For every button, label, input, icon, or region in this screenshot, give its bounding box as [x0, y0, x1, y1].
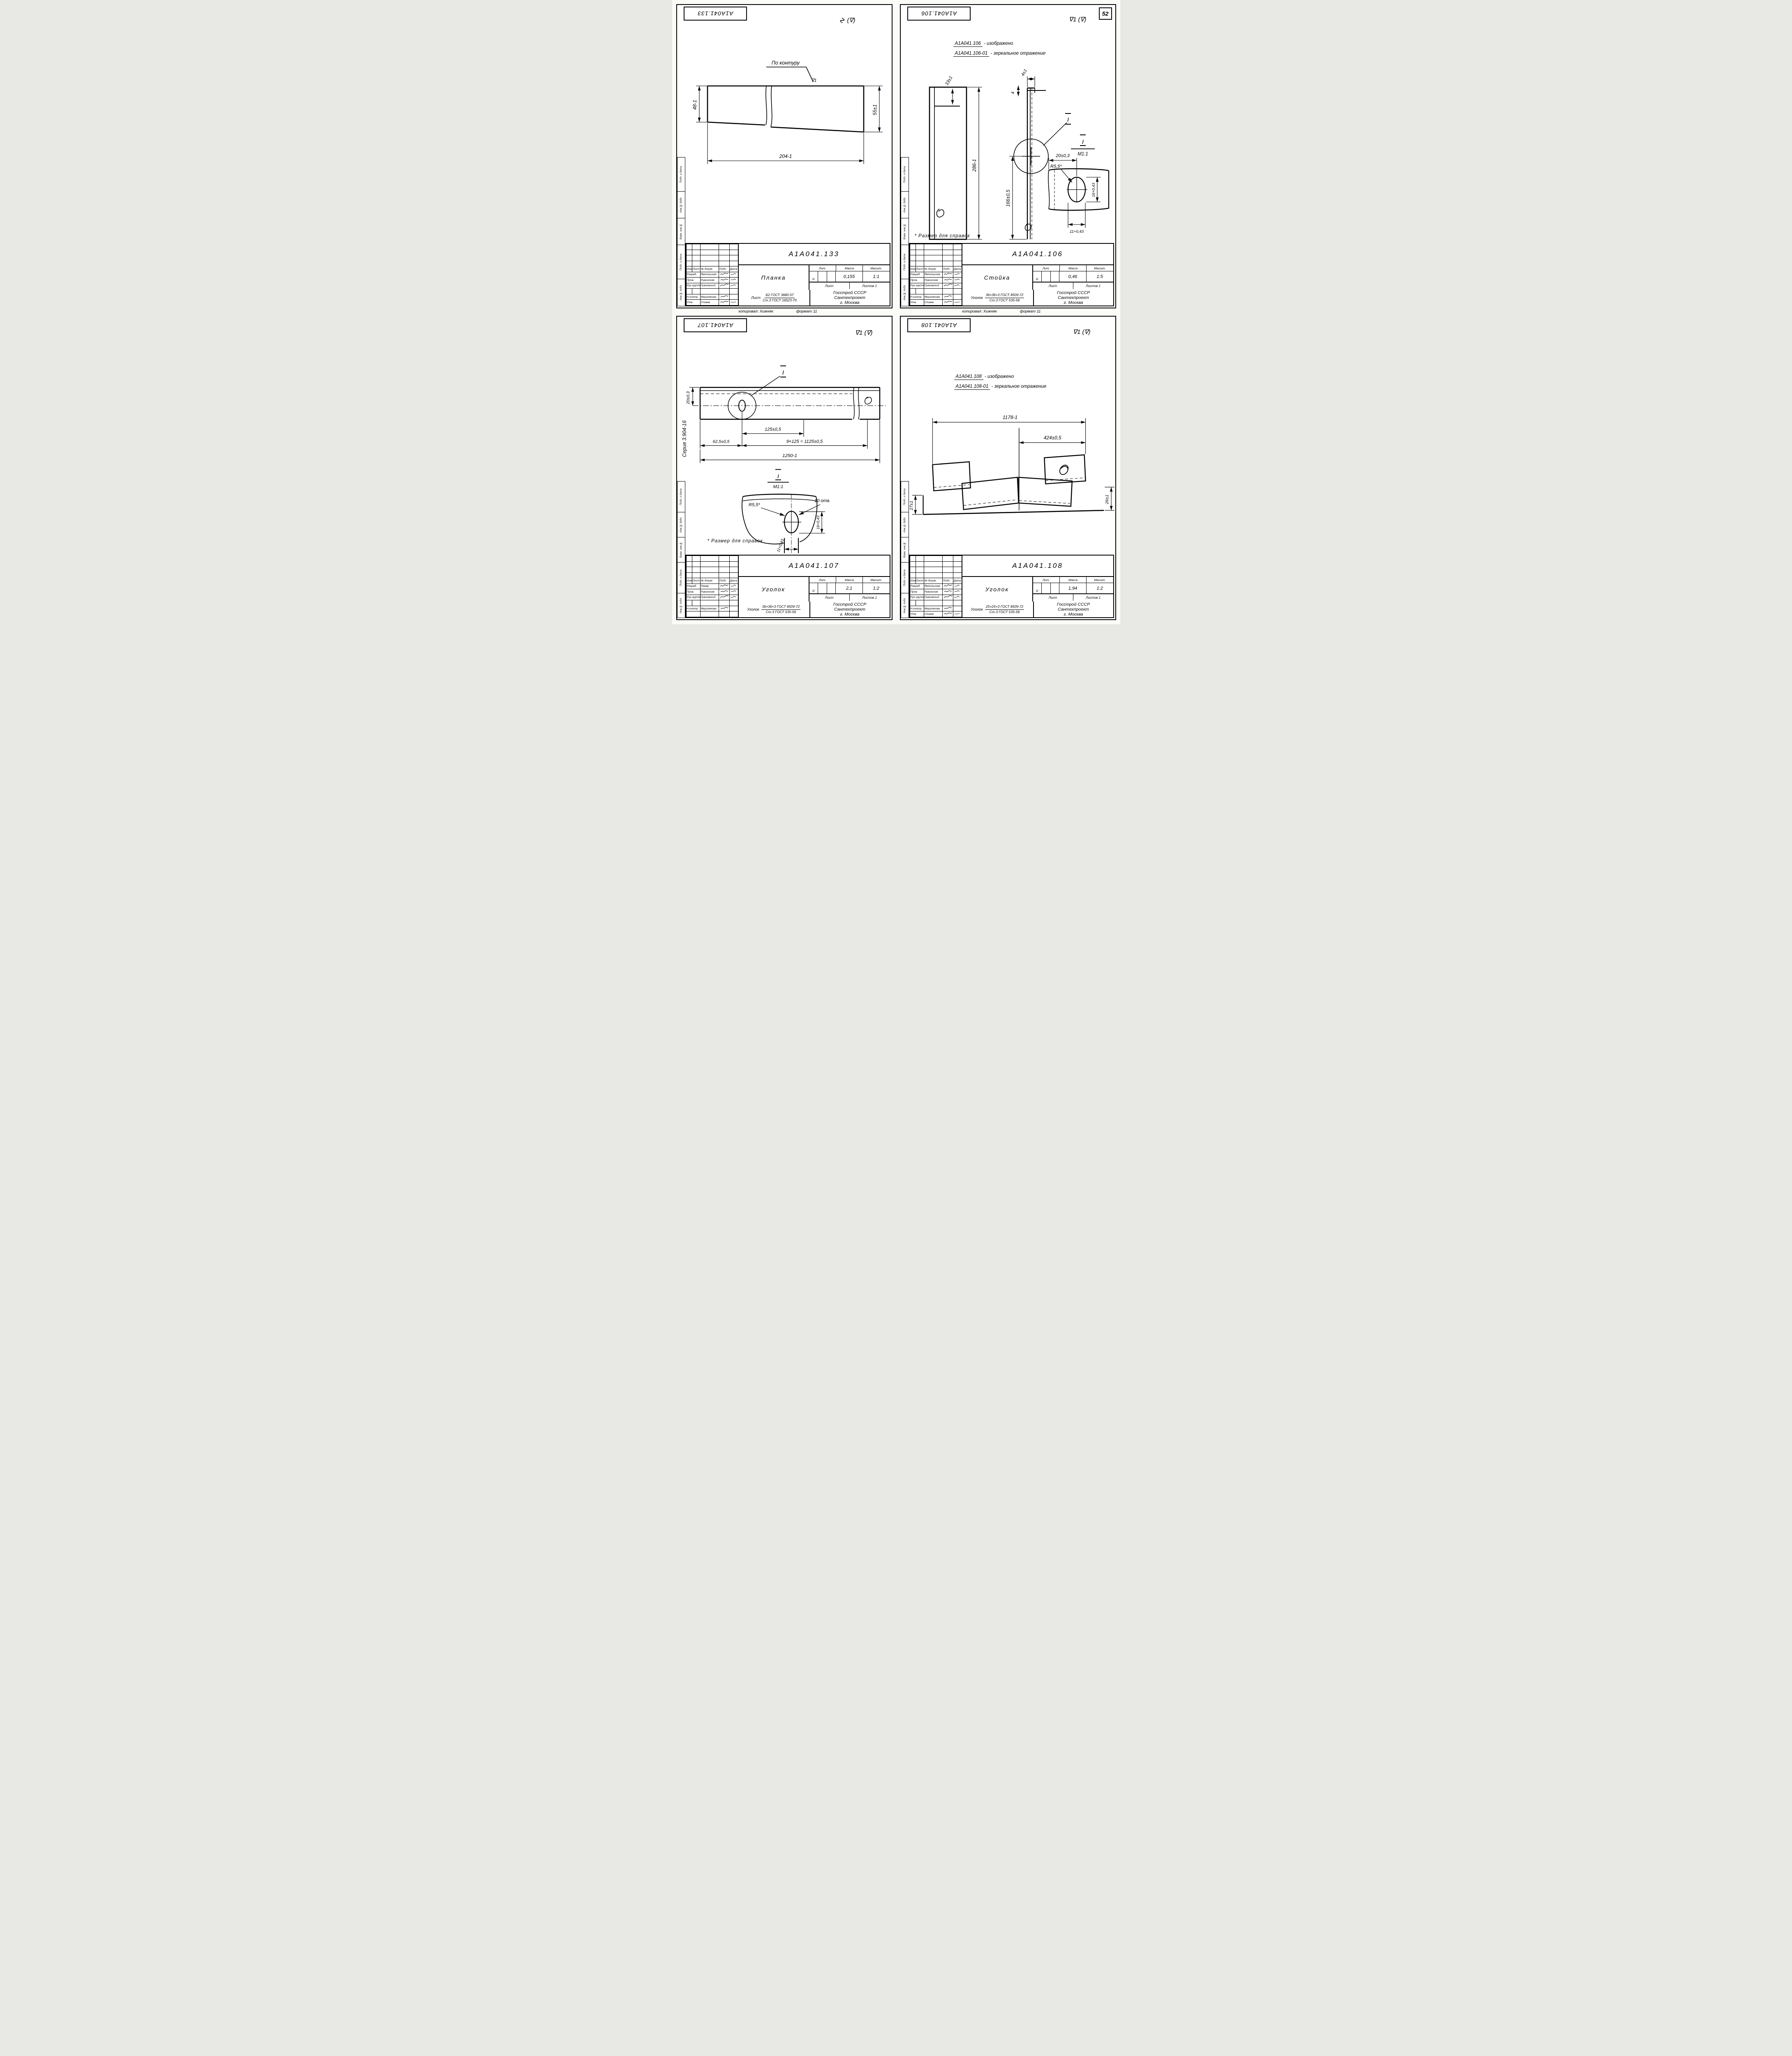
role-razrab: Разраб. — [910, 583, 924, 589]
sheet-a1a041-107: А1А041.107 ∇1 (∇) Серия 3.904-16 — [676, 316, 893, 620]
role-razrab: Разраб. — [686, 583, 700, 589]
role-razrab: Разраб. — [686, 272, 700, 278]
org-line: г. Москва — [840, 612, 860, 617]
strip-label: Инв.№ дубл. — [903, 197, 906, 213]
part-name: Уголок — [962, 577, 1033, 602]
role-utv: Утв. — [910, 611, 924, 617]
dim-424: 424±0,5 — [1043, 435, 1061, 440]
material-prefix: Лист — [751, 296, 761, 300]
signature — [719, 584, 729, 588]
col-ndok: № докум. — [700, 578, 719, 584]
org-line: Сантехпроект — [834, 295, 865, 300]
copy-line: копировал: Хижняк формат 11 — [962, 309, 1041, 314]
detail-label: I — [1082, 139, 1083, 146]
dim-16: 16+0,43 — [816, 515, 820, 529]
material-bottom: Ст.3 ГОСТ 535-58 — [990, 298, 1020, 303]
signature — [943, 607, 953, 610]
margin-strip: Подп. и дата Инв.№ дубл. Взам. инв.№ Под… — [677, 157, 685, 306]
planka-outline — [708, 86, 864, 132]
material-cell: Лист Б2 ГОСТ 3680-57Ст.3 ГОСТ 16523-70 — [739, 290, 809, 306]
material-bottom: Ст.3 ГОСТ 535-58 — [990, 610, 1020, 614]
dim-26: 26±1 — [1105, 495, 1110, 505]
material-bottom: Ст.3 ГОСТ 535-56 — [766, 610, 796, 614]
variant-doc: А1А041.108-01 — [954, 384, 990, 390]
mass-value: 0,46 — [1059, 271, 1087, 282]
strip-label: Инв.№ подл. — [903, 597, 906, 614]
signature — [943, 595, 953, 599]
doc-stamp: А1А041.133 — [684, 7, 747, 21]
scale-value: 1:2 — [1087, 583, 1113, 593]
doc-stamp: А1А041.107 — [684, 318, 747, 332]
mass-value: 1,94 — [1059, 583, 1087, 593]
ugolok-corner-view: 1178-1 424±0,5 27±1 26±1 — [901, 403, 1117, 526]
listov-value: 1 — [1098, 596, 1100, 600]
date-scribble — [954, 584, 960, 588]
name-nkontr: Мерзлякова — [924, 606, 942, 611]
break-squiggle — [1059, 465, 1068, 475]
material-top: Б2 ГОСТ 3680-57 — [765, 293, 794, 298]
radius-label: R5,5* — [1050, 164, 1062, 169]
role-prov: Пров. — [910, 278, 924, 283]
sheet-a1a041-106: А1А041.106 ∇1 (∇) 52 А1А041.106 - изобра… — [900, 4, 1116, 308]
col-data: Дата — [953, 266, 962, 272]
material-top: 36×36×3 ГОСТ 8509-72 — [985, 293, 1024, 298]
org-line: г. Москва — [1064, 300, 1083, 305]
strip-label: Инв.№ подл. — [680, 285, 682, 301]
role-utv: Утв. — [686, 300, 700, 306]
dim-11: 11+0,43 — [776, 538, 784, 553]
strip-label: Инв.№ дубл. — [680, 197, 682, 213]
name-ruk: Грановский — [700, 595, 719, 600]
roughness-v1: ∇1 — [811, 78, 816, 83]
dim-16: 16+0,43 — [1091, 183, 1096, 197]
name-nkontr: Мерзлякова — [924, 294, 942, 300]
stoyka-views: 33±1 286-1 — [904, 67, 1112, 243]
role-prov: Пров. — [686, 589, 700, 595]
margin-strip: Подп. и дата Инв.№ дубл. Взам. инв.№ Под… — [677, 481, 685, 618]
lit-value: и — [809, 271, 819, 282]
material-bottom: Ст.3 ГОСТ 16523-70 — [763, 298, 797, 303]
mass-value: 2,1 — [836, 583, 863, 593]
col-izm: Изм. — [686, 578, 692, 584]
format-label: формат 11 — [796, 309, 817, 314]
role-nkontr: Н.контр. — [686, 294, 700, 300]
date-scribble — [954, 612, 960, 616]
copied-by: копировал: Хижняк — [962, 309, 997, 314]
col-ndok: № докум. — [924, 578, 942, 584]
roughness-mark: ∇1 (∇) — [1069, 16, 1087, 23]
col-list: Лист — [916, 266, 924, 272]
dim-20: 20±0,3 — [686, 391, 690, 405]
dim-1250: 1250-1 — [782, 454, 797, 458]
name-razrab: Ямпольская — [924, 272, 942, 278]
date-scribble — [954, 278, 960, 281]
org-line: Сантехпроект — [1058, 607, 1089, 612]
strip-label: Подп. и дата — [680, 489, 682, 505]
strip-label: Подп. и дата — [903, 254, 906, 271]
dim-27: 27±1 — [909, 501, 913, 511]
dim-height-left: 48-1 — [692, 100, 698, 110]
label-list: Лист — [809, 594, 850, 601]
name-nkontr: Мерзлякова — [700, 294, 719, 300]
material-top: 25×25×3 ГОСТ 8509-72 — [985, 604, 1024, 610]
detail-label: I — [777, 473, 779, 479]
ugolok-view: I 20±0,3 125±0,5 6 — [680, 363, 892, 556]
margin-strip: Подп. и дата Инв.№ дубл. Взам. инв.№ Под… — [901, 157, 909, 306]
col-data: Дата — [953, 578, 962, 584]
organization-cell: Госстрой СССР Сантехпроект г. Москва — [809, 290, 890, 306]
format-label: формат 11 — [1020, 309, 1041, 314]
label-masshtab: Масшт. — [1087, 265, 1113, 271]
signature — [719, 278, 729, 282]
date-scribble — [730, 284, 736, 287]
dim-33: 33±1 — [944, 75, 954, 86]
col-podp: Подп. — [719, 266, 729, 272]
part-name: Стойка — [962, 265, 1033, 290]
label-masshtab: Масшт. — [1087, 577, 1113, 583]
name-prov: Рувинская — [700, 589, 719, 595]
left-panel — [932, 462, 970, 491]
doc-number: А1А041.133 — [739, 244, 890, 265]
variant-text: - изображено — [985, 374, 1014, 379]
radius-label: R5,5* — [749, 502, 760, 507]
name-ruk: Грановский — [924, 595, 942, 600]
part-name: Планка — [739, 265, 809, 290]
break-squiggle — [865, 397, 871, 404]
name-razrab: Раева — [700, 583, 719, 589]
org-line: Госстрой СССР — [833, 290, 866, 295]
strip-label: Взам. инв.№ — [680, 224, 682, 239]
material-prefix: Уголок — [747, 607, 759, 611]
role-nkontr: Н.контр. — [686, 606, 700, 611]
signature — [719, 283, 729, 287]
label-listov: Листов — [1086, 284, 1098, 288]
role-prov: Пров. — [910, 589, 924, 595]
signature — [943, 295, 953, 299]
role-ruk: Рук.группы — [686, 283, 700, 289]
copied-by: копировал: Хижняк — [739, 309, 773, 314]
lit-value: и — [809, 583, 819, 593]
material-cell: Уголок 36×36×3 ГОСТ 8509-72Ст.3 ГОСТ 535… — [962, 290, 1033, 306]
detail-scale: М1:1 — [773, 484, 783, 489]
roughness-mark: ∇1 (∇) — [855, 329, 873, 336]
col-izm: Изм. — [910, 266, 916, 272]
signature — [943, 584, 953, 588]
name-razrab: Ямпольская — [700, 272, 719, 278]
material-cell: Уголок 36×36×3 ГОСТ 8509-72Ст.3 ГОСТ 535… — [739, 602, 809, 617]
label-massa: Масса — [836, 577, 863, 583]
doc-number: А1А041.108 — [962, 556, 1113, 577]
material-prefix: Уголок — [971, 296, 983, 300]
material-prefix: Уголок — [971, 607, 983, 611]
dim-286: 286-1 — [971, 159, 977, 172]
label-list: Лист — [1033, 282, 1073, 289]
scale-value: 1:5 — [1087, 271, 1113, 282]
date-scribble — [954, 301, 960, 304]
dim-20: 20±0,3 — [1055, 153, 1070, 158]
dim-height-right: 55±1 — [872, 104, 878, 116]
strip-label: Подп. и дата — [903, 489, 906, 505]
org-line: Сантехпроект — [1058, 295, 1089, 300]
strip-label: Инв.№ подл. — [680, 597, 682, 614]
name-prov: Рувинская — [924, 278, 942, 283]
sheet-a1a041-133: А1А041.133 ∿ (∇) По контуру ∇1 — [676, 4, 893, 308]
holes-count: 10 отв. — [814, 498, 830, 503]
break-squiggle — [936, 209, 944, 217]
title-block: Изм.Лист№ докум.Подп.Дата Разраб.Ямпольс… — [909, 243, 1114, 306]
variant-text: - изображено — [984, 41, 1013, 46]
signature — [943, 278, 953, 282]
date-scribble — [730, 301, 736, 304]
roughness-mark: ∿ (∇) — [839, 16, 856, 24]
name-utv — [700, 611, 719, 617]
date-scribble — [954, 595, 960, 599]
roughness-all: (∇) — [847, 17, 855, 24]
name-utv: Спивак — [924, 300, 942, 306]
strip-label: Инв.№ дубл. — [903, 517, 906, 533]
label-masshtab: Масшт. — [863, 577, 889, 583]
strip-label: Взам. инв.№ — [680, 542, 682, 558]
dim-1178: 1178-1 — [1002, 414, 1017, 420]
scale-value: 1:2 — [863, 583, 890, 593]
org-line: Госстрой СССР — [1057, 290, 1090, 295]
strip-label: Подп. и дата — [903, 570, 906, 586]
strip-label: Взам. инв.№ — [903, 542, 906, 558]
dim-125: 125±0,5 — [765, 427, 782, 432]
part-name: Уголок — [739, 577, 809, 602]
col-list: Лист — [692, 266, 700, 272]
title-block: Изм.Лист№ докум.Подп.Дата Разраб.Раева П… — [685, 555, 890, 618]
break-lines — [765, 86, 772, 127]
col-podp: Подп. — [942, 578, 953, 584]
lit-value: и — [1033, 583, 1042, 593]
name-ruk: Грановский — [924, 283, 942, 289]
label-massa: Масса — [1060, 265, 1087, 271]
doc-number: А1А041.106 — [962, 244, 1113, 265]
title-block: Изм.Лист№ докум.Подп.Дата Разраб.Ямпольс… — [909, 555, 1114, 618]
strip-label: Подп. и дата — [680, 570, 682, 586]
date-scribble — [954, 590, 960, 593]
col-list: Лист — [916, 578, 924, 584]
copy-line: копировал: Хижняк формат 11 — [739, 309, 817, 314]
org-line: г. Москва — [840, 300, 860, 305]
variant-text: - зеркальное отражение — [992, 384, 1047, 389]
reference-note: * Размер для справок — [708, 539, 763, 544]
detail-scale: М1:1 — [1078, 152, 1088, 157]
sheet-a1a041-108: А1А041.108 ∇1 (∇) А1А041.108 - изображен… — [900, 316, 1116, 620]
variant-doc: А1А041.106-01 — [953, 51, 990, 57]
drawing-stoyka: 33±1 286-1 — [904, 67, 1112, 243]
signature — [943, 283, 953, 287]
role-nkontr: Н.контр. — [910, 606, 924, 611]
col-data: Дата — [729, 578, 738, 584]
drawing-planka: По контуру ∇1 48-1 — [683, 54, 888, 190]
scale-value: 1:1 — [863, 271, 890, 282]
dim-62: 62,5±0,5 — [712, 440, 729, 444]
dim-length: 204-1 — [779, 153, 792, 159]
label-list: Лист — [809, 282, 850, 289]
signature — [943, 272, 953, 276]
col-izm: Изм. — [686, 266, 692, 272]
label-masshtab: Масшт. — [863, 265, 889, 271]
date-scribble — [954, 273, 960, 276]
label-listov: Листов — [862, 596, 874, 600]
doc-stamp: А1А041.106 — [907, 7, 971, 21]
col-ndok: № докум. — [700, 266, 719, 272]
variant-header: А1А041.108 - изображено А1А041.108-01 - … — [954, 374, 1047, 394]
date-scribble — [954, 284, 960, 287]
organization-cell: Госстрой СССР Сантехпроект г. Москва — [1033, 290, 1113, 306]
date-scribble — [730, 584, 736, 588]
role-prov: Пров. — [686, 278, 700, 283]
signature — [943, 300, 953, 304]
dim-166: 166±0,5 — [1006, 190, 1011, 207]
label-listov: Листов — [862, 284, 874, 288]
title-block: Изм.Лист№ докум.Подп.Дата Разраб.Ямпольс… — [685, 243, 890, 306]
role-utv: Утв. — [910, 300, 924, 306]
material-top: 36×36×3 ГОСТ 8509-72 — [761, 604, 800, 610]
label-massa: Масса — [1060, 577, 1087, 583]
label-massa: Масса — [836, 265, 863, 271]
reference-note: * Размер для справок — [915, 234, 970, 238]
label-lit: Лит. — [809, 265, 836, 271]
strip-label: Подп. и дата — [680, 254, 682, 271]
label-lit: Лит. — [1033, 265, 1060, 271]
col-podp: Подп. — [942, 266, 953, 272]
dim-4a: 4±1 — [1020, 68, 1028, 77]
name-prov: Рувинская — [924, 589, 942, 595]
name-nkontr: Мерзлякова — [700, 606, 719, 611]
name-razrab: Ямпольская — [924, 583, 942, 589]
col-list: Лист — [692, 578, 700, 584]
margin-strip: Подп. и дата Инв.№ дубл. Взам. инв.№ Под… — [901, 481, 909, 618]
signature — [943, 612, 953, 616]
listov-value: 1 — [875, 284, 876, 288]
variant-header: А1А041.106 - изображено А1А041.106-01 - … — [953, 41, 1046, 61]
col-izm: Изм. — [910, 578, 916, 584]
label-list: Лист — [1033, 594, 1073, 601]
material-cell: Уголок 25×25×3 ГОСТ 8509-72Ст.3 ГОСТ 535… — [962, 602, 1033, 617]
drawing-ugolok-107: I 20±0,3 125±0,5 6 — [680, 363, 892, 556]
listov-value: 1 — [1098, 284, 1100, 288]
role-nkontr: Н.контр. — [910, 294, 924, 300]
listov-value: 1 — [875, 596, 876, 600]
signature — [719, 300, 729, 304]
signature — [719, 590, 729, 593]
org-line: Госстрой СССР — [833, 602, 866, 607]
roughness-mark: ∇1 (∇) — [1073, 328, 1091, 336]
strip-label: Подп. и дата — [903, 166, 906, 183]
role-utv — [686, 611, 700, 617]
signature — [719, 272, 729, 276]
mass-value: 0,155 — [836, 271, 863, 282]
date-scribble — [730, 278, 736, 281]
strip-label: Взам. инв.№ — [903, 224, 906, 239]
name-utv: Спивак — [924, 611, 942, 617]
signature — [719, 595, 729, 599]
name-prov: Рувинская — [700, 278, 719, 283]
role-ruk: Рук.группы — [910, 283, 924, 289]
label-listov: Листов — [1086, 596, 1098, 600]
break-symbol: ∿ — [840, 16, 844, 23]
name-utv: Спивак — [700, 300, 719, 306]
strip-label: Инв.№ подл. — [903, 285, 906, 301]
leader-contour-label: По контуру — [771, 60, 800, 66]
doc-stamp: А1А041.108 — [907, 318, 971, 332]
dim-1125: 9×125 = 1125±0,5 — [786, 439, 823, 444]
role-ruk: Рук.группы — [686, 595, 700, 600]
strip-label: Подп. и дата — [680, 166, 682, 183]
organization-cell: Госстрой СССР Сантехпроект г. Москва — [1033, 602, 1113, 617]
signature — [943, 590, 953, 593]
doc-number: А1А041.107 — [739, 556, 890, 577]
variant-doc: А1А041.108 — [954, 374, 983, 380]
detail-ref: I — [782, 370, 784, 376]
organization-cell: Госстрой СССР Сантехпроект г. Москва — [809, 602, 890, 617]
date-scribble — [730, 590, 736, 593]
label-lit: Лит. — [809, 577, 836, 583]
org-line: Сантехпроект — [834, 607, 865, 612]
date-scribble — [730, 273, 736, 276]
variant-doc: А1А041.106 — [953, 41, 983, 47]
date-scribble — [730, 595, 736, 599]
role-razrab: Разраб. — [910, 272, 924, 278]
label-lit: Лит. — [1033, 577, 1060, 583]
dim-11: 11+0,43 — [1070, 229, 1084, 234]
planka-view: По контуру ∇1 48-1 — [683, 54, 888, 190]
blueprint-page: А1А041.133 ∿ (∇) По контуру ∇1 — [672, 0, 1120, 624]
signature — [719, 607, 729, 610]
drawing-ugolok-108: 1178-1 424±0,5 27±1 26±1 — [901, 403, 1117, 526]
strip-label: Инв.№ дубл. — [680, 517, 682, 533]
signature — [719, 295, 729, 299]
detail-ref: I — [1067, 116, 1068, 123]
variant-text: - зеркальное отражение — [991, 51, 1046, 56]
dim-4b: 4 — [1010, 92, 1015, 94]
col-data: Дата — [729, 266, 738, 272]
page-number: 52 — [1099, 7, 1112, 20]
org-line: Госстрой СССР — [1057, 602, 1090, 607]
lit-value: и — [1033, 271, 1042, 282]
org-line: г. Москва — [1064, 612, 1083, 617]
col-podp: Подп. — [719, 578, 729, 584]
col-ndok: № докум. — [924, 266, 942, 272]
role-ruk: Рук.группы — [910, 595, 924, 600]
name-ruk: Грановский — [700, 283, 719, 289]
